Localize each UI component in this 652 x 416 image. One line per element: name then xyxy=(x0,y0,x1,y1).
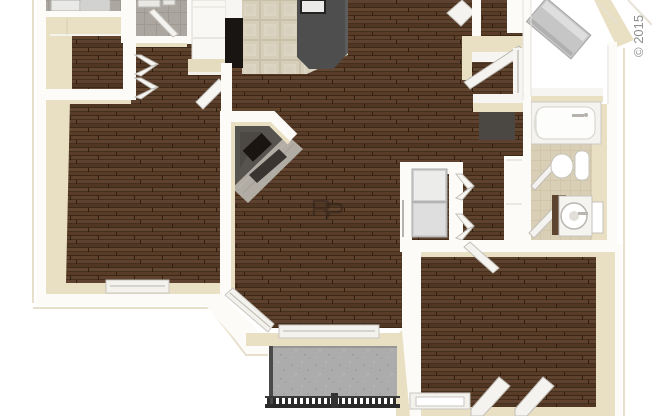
svg-text:© 2015: © 2015 xyxy=(631,15,646,57)
